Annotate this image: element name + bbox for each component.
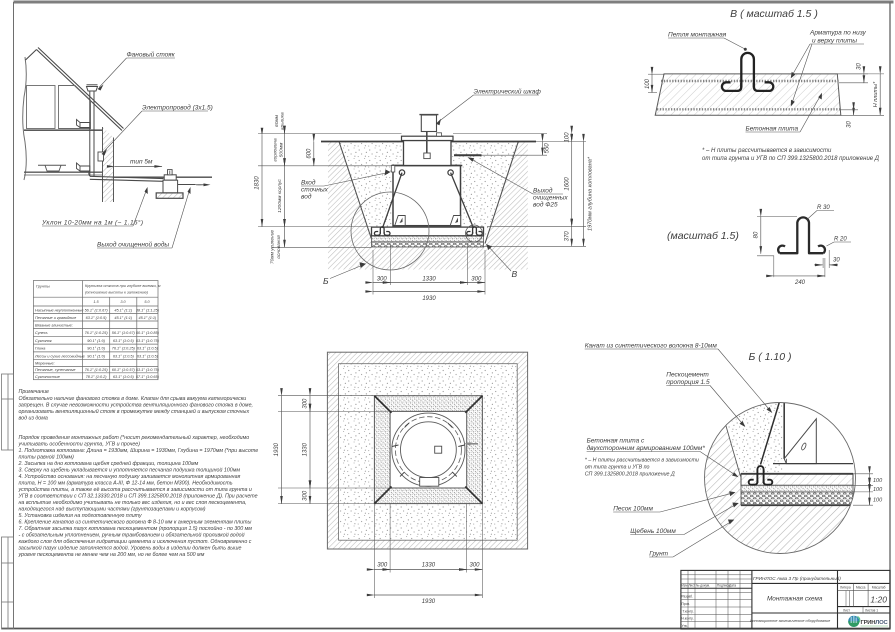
svg-text:Масштаб: Масштаб (872, 586, 886, 590)
svg-text:от типа грунта и УГВ по: от типа грунта и УГВ по (585, 465, 650, 471)
svg-text:(отношение высоты к заложению): (отношение высоты к заложению) (85, 291, 149, 295)
svg-text:Песчаные, супесчаные: Песчаные, супесчаные (35, 368, 76, 372)
svg-text:Б ( 1.10 ): Б ( 1.10 ) (748, 351, 791, 363)
svg-text:1330: 1330 (303, 442, 309, 456)
svg-text:ГРИНЛОС: ГРИНЛОС (861, 620, 889, 626)
svg-text:устройства плиты, а также её в: устройства плиты, а также её высота расс… (18, 486, 252, 493)
svg-text:Лессы и сухие лессовидные: Лессы и сухие лессовидные (34, 354, 85, 358)
svg-text:Дата: Дата (729, 584, 736, 588)
svg-text:Моренные:: Моренные: (35, 362, 55, 366)
svg-text:Супесь: Супесь (35, 331, 48, 335)
svg-text:Грунты: Грунты (36, 285, 50, 289)
svg-text:Пров.: Пров. (682, 602, 691, 606)
svg-text:* – Н плиты рассчитывается в: * – Н плиты рассчитывается в зависимости (702, 148, 832, 154)
svg-text:плиты равной 100мм): плиты равной 100мм) (19, 454, 75, 461)
svg-text:45.1° (1:1): 45.1° (1:1) (114, 316, 133, 320)
svg-text:50.1° (1:0.85): 50.1° (1:0.85) (136, 331, 160, 335)
svg-text:500мм: 500мм (278, 142, 284, 157)
svg-text:300: 300 (377, 276, 388, 282)
svg-text:300: 300 (471, 276, 482, 282)
svg-text:Фановый стояк: Фановый стояк (127, 51, 176, 59)
svg-text:1330: 1330 (422, 563, 436, 569)
svg-text:организовать вентиляционный ст: организовать вентиляционный стояк в пром… (19, 408, 250, 415)
svg-text:вод: вод (301, 193, 312, 201)
svg-text:550: 550 (544, 143, 550, 154)
svg-text:Н.контр.: Н.контр. (682, 617, 694, 621)
svg-text:1:20: 1:20 (870, 595, 887, 605)
svg-text:38.1° (1:1.25): 38.1° (1:1.25) (136, 309, 160, 313)
svg-text:основания: основания (277, 235, 282, 259)
svg-text:63.1° (1:0.5): 63.1° (1:0.5) (137, 354, 159, 358)
svg-text:4. Устройство основания: на пе: 4. Устройство основания: на песчаную под… (19, 473, 241, 480)
svg-text:1930: 1930 (422, 296, 436, 302)
svg-text:80: 80 (753, 231, 759, 238)
svg-text:100: 100 (873, 478, 883, 484)
svg-text:2. Засыпка на дно котлована ще: 2. Засыпка на дно котлована щебня средне… (18, 460, 199, 467)
svg-text:30: 30 (846, 121, 852, 128)
svg-text:очищенных: очищенных (533, 195, 568, 202)
svg-text:100: 100 (565, 132, 571, 143)
svg-text:63.1° (1:0.5): 63.1° (1:0.5) (137, 347, 159, 351)
svg-text:76.1° (1:0.25): 76.1° (1:0.25) (85, 368, 109, 372)
svg-text:1200мм корпус: 1200мм корпус (277, 179, 283, 213)
svg-text:1830: 1830 (255, 176, 261, 190)
svg-text:Н плиты*: Н плиты* (873, 81, 879, 107)
svg-text:СП 399.1325800.2018 приложение: СП 399.1325800.2018 приложение Д (585, 472, 675, 478)
svg-text:вод из дома: вод из дома (19, 416, 48, 422)
svg-text:Масса: Масса (856, 586, 866, 590)
svg-text:№ докум.: № докум. (696, 584, 710, 588)
svg-text:1.5: 1.5 (93, 300, 99, 304)
svg-text:Электропровод (3х1.5): Электропровод (3х1.5) (142, 104, 213, 112)
svg-text:Монтажная схема: Монтажная схема (767, 596, 823, 603)
svg-text:Уклон 10-20мм на 1м (~ 1.15°): Уклон 10-20мм на 1м (~ 1.15°) (41, 219, 143, 227)
svg-text:Глина: Глина (35, 347, 45, 351)
svg-text:Изм Лист: Изм Лист (682, 584, 696, 588)
svg-text:53.1° (1:0.75): 53.1° (1:0.75) (136, 339, 160, 343)
svg-text:90.1° (1:0): 90.1° (1:0) (87, 347, 106, 351)
svg-text:плита, Н = 100 мм (арматура кл: плита, Н = 100 мм (арматура класса А-III… (19, 481, 233, 487)
svg-text:Бетонная плита с: Бетонная плита с (587, 438, 645, 445)
svg-text:Пескоцемент: Пескоцемент (666, 372, 709, 379)
svg-text:240: 240 (794, 280, 806, 286)
svg-text:100: 100 (873, 498, 883, 504)
svg-text:запрещен. В случае невозможнос: запрещен. В случае невозможности устройс… (18, 402, 253, 409)
svg-text:600: 600 (307, 148, 313, 159)
svg-text:Щебень 100мм: Щебень 100мм (630, 527, 676, 535)
svg-text:Выход: Выход (533, 187, 553, 195)
svg-text:Песок 100мм: Песок 100мм (613, 506, 653, 513)
svg-text:Вязаные глинистые:: Вязаные глинистые: (35, 324, 73, 328)
svg-text:63.1° (1:0.5): 63.1° (1:0.5) (113, 354, 135, 358)
svg-text:Песчаные и гравийные: Песчаные и гравийные (35, 316, 76, 320)
svg-text:90.1° (1:0): 90.1° (1:0) (87, 354, 106, 358)
svg-text:45.1° (1:1): 45.1° (1:1) (139, 316, 158, 320)
svg-text:1. Подготовка котлована: Длина: 1. Подготовка котлована: Длина = 1930мм,… (19, 448, 259, 454)
svg-text:90.1° (1:0): 90.1° (1:0) (87, 339, 106, 343)
svg-text:крышка: крышка (281, 112, 286, 130)
svg-text:60.1° (1:0.57): 60.1° (1:0.57) (112, 368, 136, 372)
svg-text:60мм: 60мм (274, 114, 280, 127)
svg-text:Канат из синтетического волокн: Канат из синтетического волокна 8-10мм (585, 343, 718, 350)
svg-text:7. Обратная засыпка пазух котл: 7. Обратная засыпка пазух котлована песк… (19, 525, 253, 532)
svg-text:76.1° (1:0.25): 76.1° (1:0.25) (85, 331, 109, 335)
svg-text:горловина: горловина (274, 138, 279, 162)
svg-text:56.1° (1:0.67): 56.1° (1:0.67) (112, 331, 136, 335)
svg-text:30: 30 (833, 258, 840, 264)
svg-text:Порядок проведения монтажных р: Порядок проведения монтажных работ (*нос… (19, 434, 250, 441)
svg-text:Арматура по низу: Арматура по низу (809, 30, 867, 37)
svg-text:вод Ф25: вод Ф25 (533, 201, 558, 209)
svg-text:Литера: Литера (840, 586, 851, 590)
svg-text:пропорция 1.5: пропорция 1.5 (666, 379, 710, 386)
svg-text:3.0: 3.0 (120, 300, 126, 304)
svg-text:Разраб.: Разраб. (682, 595, 694, 599)
svg-text:сточных: сточных (301, 187, 329, 194)
svg-text:уровня пескоцемента не менее ч: уровня пескоцемента не менее чем на 200 … (18, 552, 205, 558)
svg-text:5.0: 5.0 (144, 300, 150, 304)
svg-text:76.1° (1:0.25): 76.1° (1:0.25) (112, 347, 136, 351)
svg-text:3. Сверху на щебень укладывает: 3. Сверху на щебень укладывается и уплот… (19, 467, 241, 474)
svg-text:Лист: Лист (843, 608, 850, 612)
svg-text:R 20: R 20 (834, 237, 847, 243)
svg-text:78.1° (1:0.2): 78.1° (1:0.2) (86, 375, 108, 379)
svg-text:(масштаб 1.5): (масштаб 1.5) (667, 230, 739, 242)
svg-text:Вход: Вход (301, 179, 316, 187)
svg-text:63.1° (1:0.5): 63.1° (1:0.5) (86, 316, 108, 320)
svg-text:Т.контр.: Т.контр. (683, 609, 695, 613)
svg-text:Петля монтажная: Петля монтажная (668, 32, 727, 39)
svg-text:1970мм глубина котлована*: 1970мм глубина котлована* (588, 156, 594, 231)
svg-text:6. Крепление канатов из синтет: 6. Крепление канатов из синтетического в… (19, 520, 252, 526)
svg-text:двухсторонним армированием 100: двухсторонним армированием 100мм* (587, 444, 706, 452)
svg-text:63.1° (1:0.5): 63.1° (1:0.5) (113, 339, 135, 343)
svg-text:Электрический шкаф: Электрический шкаф (474, 88, 542, 96)
svg-text:1330: 1330 (422, 276, 436, 282)
svg-text:тип 5м: тип 5м (130, 159, 153, 166)
svg-text:Крутизна откосов при глубине в: Крутизна откосов при глубине выемки, м (85, 284, 161, 288)
svg-text:30: 30 (857, 63, 863, 70)
svg-text:Суглинок: Суглинок (35, 339, 52, 343)
svg-text:300: 300 (377, 563, 388, 569)
svg-text:- с обязательным уплотнением,: - с обязательным уплотнением, ручным тра… (19, 532, 245, 539)
svg-text:Утв.: Утв. (682, 624, 688, 628)
svg-text:300: 300 (469, 563, 480, 569)
svg-text:Грунт: Грунт (649, 551, 668, 558)
svg-text:370: 370 (565, 231, 571, 242)
svg-text:63.1° (1:0.5): 63.1° (1:0.5) (113, 375, 135, 379)
svg-text:УГВ в соответствии с СП 32.133: УГВ в соответствии с СП 32.13330.2018 и … (19, 494, 258, 500)
svg-text:1930: 1930 (422, 599, 436, 605)
svg-text:Б: Б (323, 276, 329, 286)
svg-text:Суглинистые: Суглинистые (35, 375, 60, 379)
svg-text:45.1° (1:1): 45.1° (1:1) (114, 309, 133, 313)
svg-text:Бетонная плита: Бетонная плита (746, 126, 799, 133)
svg-text:находящегося над выступающими: находящегося над выступающими частями (г… (19, 507, 206, 513)
svg-text:засыпкой пазух изделие заполня: засыпкой пазух изделие заполняется водой… (18, 545, 242, 552)
svg-text:Подпись: Подпись (717, 584, 730, 588)
svg-text:Выход очищенной воды: Выход очищенной воды (97, 241, 169, 249)
svg-text:учитывать особенности грунта,: учитывать особенности грунта, УГВ и проч… (18, 442, 141, 448)
svg-text:53.1° (1:0.75): 53.1° (1:0.75) (136, 368, 160, 372)
svg-text:и верху плиты: и верху плиты (812, 38, 857, 45)
svg-text:1930: 1930 (274, 442, 280, 456)
svg-text:Инновационное экологическое об: Инновационное экологическое оборудование (750, 619, 831, 623)
svg-text:70мм усиление: 70мм усиление (270, 230, 276, 264)
svg-text:5. Установка изделия на подгот: 5. Установка изделия на подготовленную п… (19, 513, 142, 519)
svg-text:на всплытие необходимо учитыв: на всплытие необходимо учитывать не толь… (19, 500, 247, 506)
svg-text:300: 300 (303, 398, 309, 409)
svg-text:Листов 1: Листов 1 (865, 608, 878, 612)
svg-text:В: В (512, 269, 518, 279)
svg-text:1600: 1600 (565, 177, 571, 191)
svg-text:100: 100 (645, 78, 651, 89)
svg-text:R 30: R 30 (817, 205, 830, 211)
svg-text:Обязательно наличие фанового с: Обязательно наличие фанового стояка в до… (19, 396, 247, 402)
svg-text:от типа грунта и УГВ по СП 399: от типа грунта и УГВ по СП 399.1325800.2… (702, 156, 880, 162)
svg-text:В ( масштаб 1.5 ): В ( масштаб 1.5 ) (730, 8, 818, 20)
svg-text:100: 100 (873, 487, 883, 493)
svg-text:* – Н плиты рассчитывается в: * – Н плиты рассчитывается в зависимости (585, 458, 699, 464)
svg-text:Насыпные неуплотненные: Насыпные неуплотненные (35, 309, 83, 313)
svg-text:57.1° (1:0.65): 57.1° (1:0.65) (136, 375, 160, 379)
svg-text:Примечание: Примечание (19, 389, 50, 395)
svg-text:56.1° (1:0.67): 56.1° (1:0.67) (85, 309, 109, 313)
svg-text:ГРИНЛОС Аква 3 Пр (принудитель: ГРИНЛОС Аква 3 Пр (принудительный) (753, 575, 841, 581)
svg-text:каждого слоя для обеспечения г: каждого слоя для обеспечения гидратации … (19, 539, 252, 545)
svg-text:300: 300 (303, 490, 309, 501)
